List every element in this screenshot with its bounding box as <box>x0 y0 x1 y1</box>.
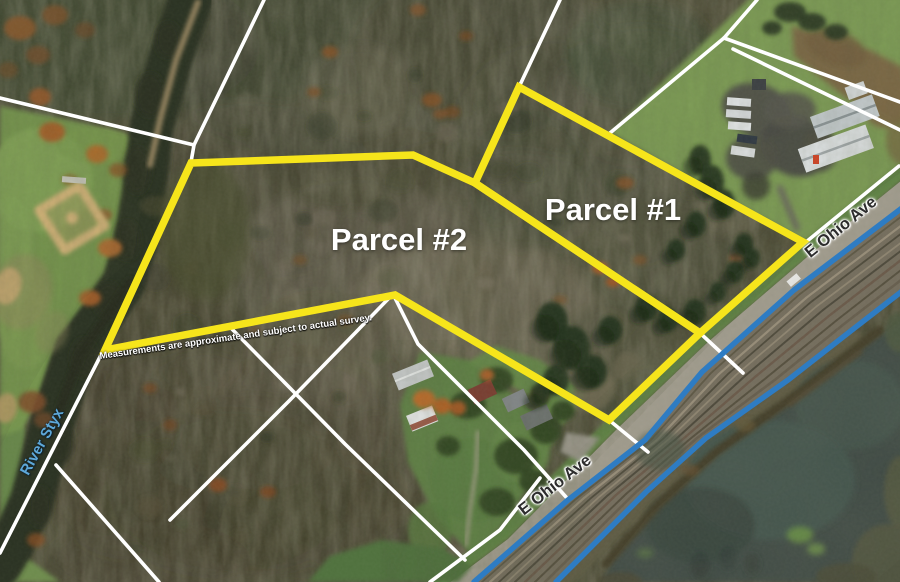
svg-text:Parcel #2: Parcel #2 <box>331 222 467 257</box>
svg-text:Parcel #1: Parcel #1 <box>545 192 681 227</box>
